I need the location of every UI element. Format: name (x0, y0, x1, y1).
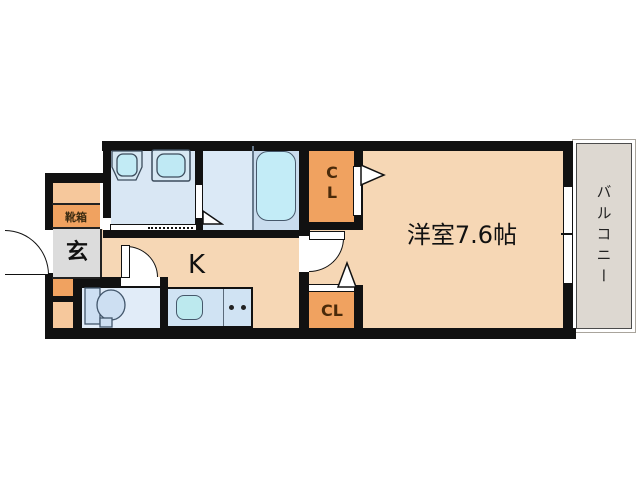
line-under-upper-block (52, 203, 100, 205)
balcony-label: バルコニー (594, 184, 615, 289)
closet-top-label-line2: L (309, 183, 355, 203)
shoe-box: 靴箱 (52, 205, 100, 229)
main-room-label: 洋室7.6帖 (362, 223, 562, 247)
wall-closet-bottom-right (354, 285, 363, 338)
bath-zone-divider (252, 146, 254, 230)
toilet-icon (84, 287, 130, 329)
washing-machine-icon (151, 149, 192, 183)
genkan-step-line (100, 229, 102, 277)
toilet-door-leaf (121, 245, 130, 278)
lower-storage-block-a (52, 279, 73, 296)
closet-top-door-triangle-icon (360, 162, 386, 188)
wall-bath-left-upper (195, 141, 203, 185)
main-room-door-leaf (309, 231, 345, 240)
bathtub (256, 151, 296, 221)
genkan-label: 玄 (66, 242, 88, 264)
stove-burner-icon (229, 305, 234, 310)
lower-storage-block-b (52, 302, 73, 328)
closet-bottom-label: CL (309, 292, 355, 328)
kitchen-counter (166, 287, 253, 328)
main-room-door-opening (299, 236, 309, 272)
bathroom-door-triangle-icon (202, 210, 224, 226)
balcony-inner: バルコニー (576, 143, 632, 329)
divider-lower-blocks (52, 296, 73, 302)
kitchen-label: K (188, 252, 205, 278)
wall-top-left (45, 173, 103, 183)
shoe-box-label: 靴箱 (65, 212, 87, 223)
sliding-door-track (148, 227, 193, 229)
entrance-door-swing (5, 230, 49, 275)
closet-bottom-door-triangle-icon (337, 261, 357, 289)
kitchen-sink (176, 295, 203, 320)
wall-washroom-left (103, 141, 111, 218)
counter-divider (223, 289, 224, 326)
washbasin-icon (111, 150, 143, 182)
wall-bottom (45, 328, 576, 339)
line-below-genkan (52, 277, 100, 279)
window-balcony (563, 187, 573, 283)
wall-under-washroom (103, 230, 310, 238)
floor-plan: 靴箱 玄 バルコニー (0, 0, 640, 480)
balcony: バルコニー (572, 139, 636, 333)
washroom-sliding-door (110, 224, 197, 231)
line-above-genkan (52, 227, 100, 229)
upper-storage-block (52, 183, 100, 205)
wall-closet-top-bottom (299, 222, 363, 230)
closet-top-label-line1: C (309, 163, 355, 183)
wall-left-upper (45, 183, 53, 230)
genkan-area: 玄 (52, 229, 102, 277)
window-center-tick (561, 233, 573, 235)
toilet-door-opening (121, 277, 160, 286)
closet-top-label: C L (309, 163, 355, 203)
wall-left-lower (45, 273, 53, 333)
wall-toilet-left (73, 277, 82, 328)
stove-burner-icon (241, 305, 246, 310)
